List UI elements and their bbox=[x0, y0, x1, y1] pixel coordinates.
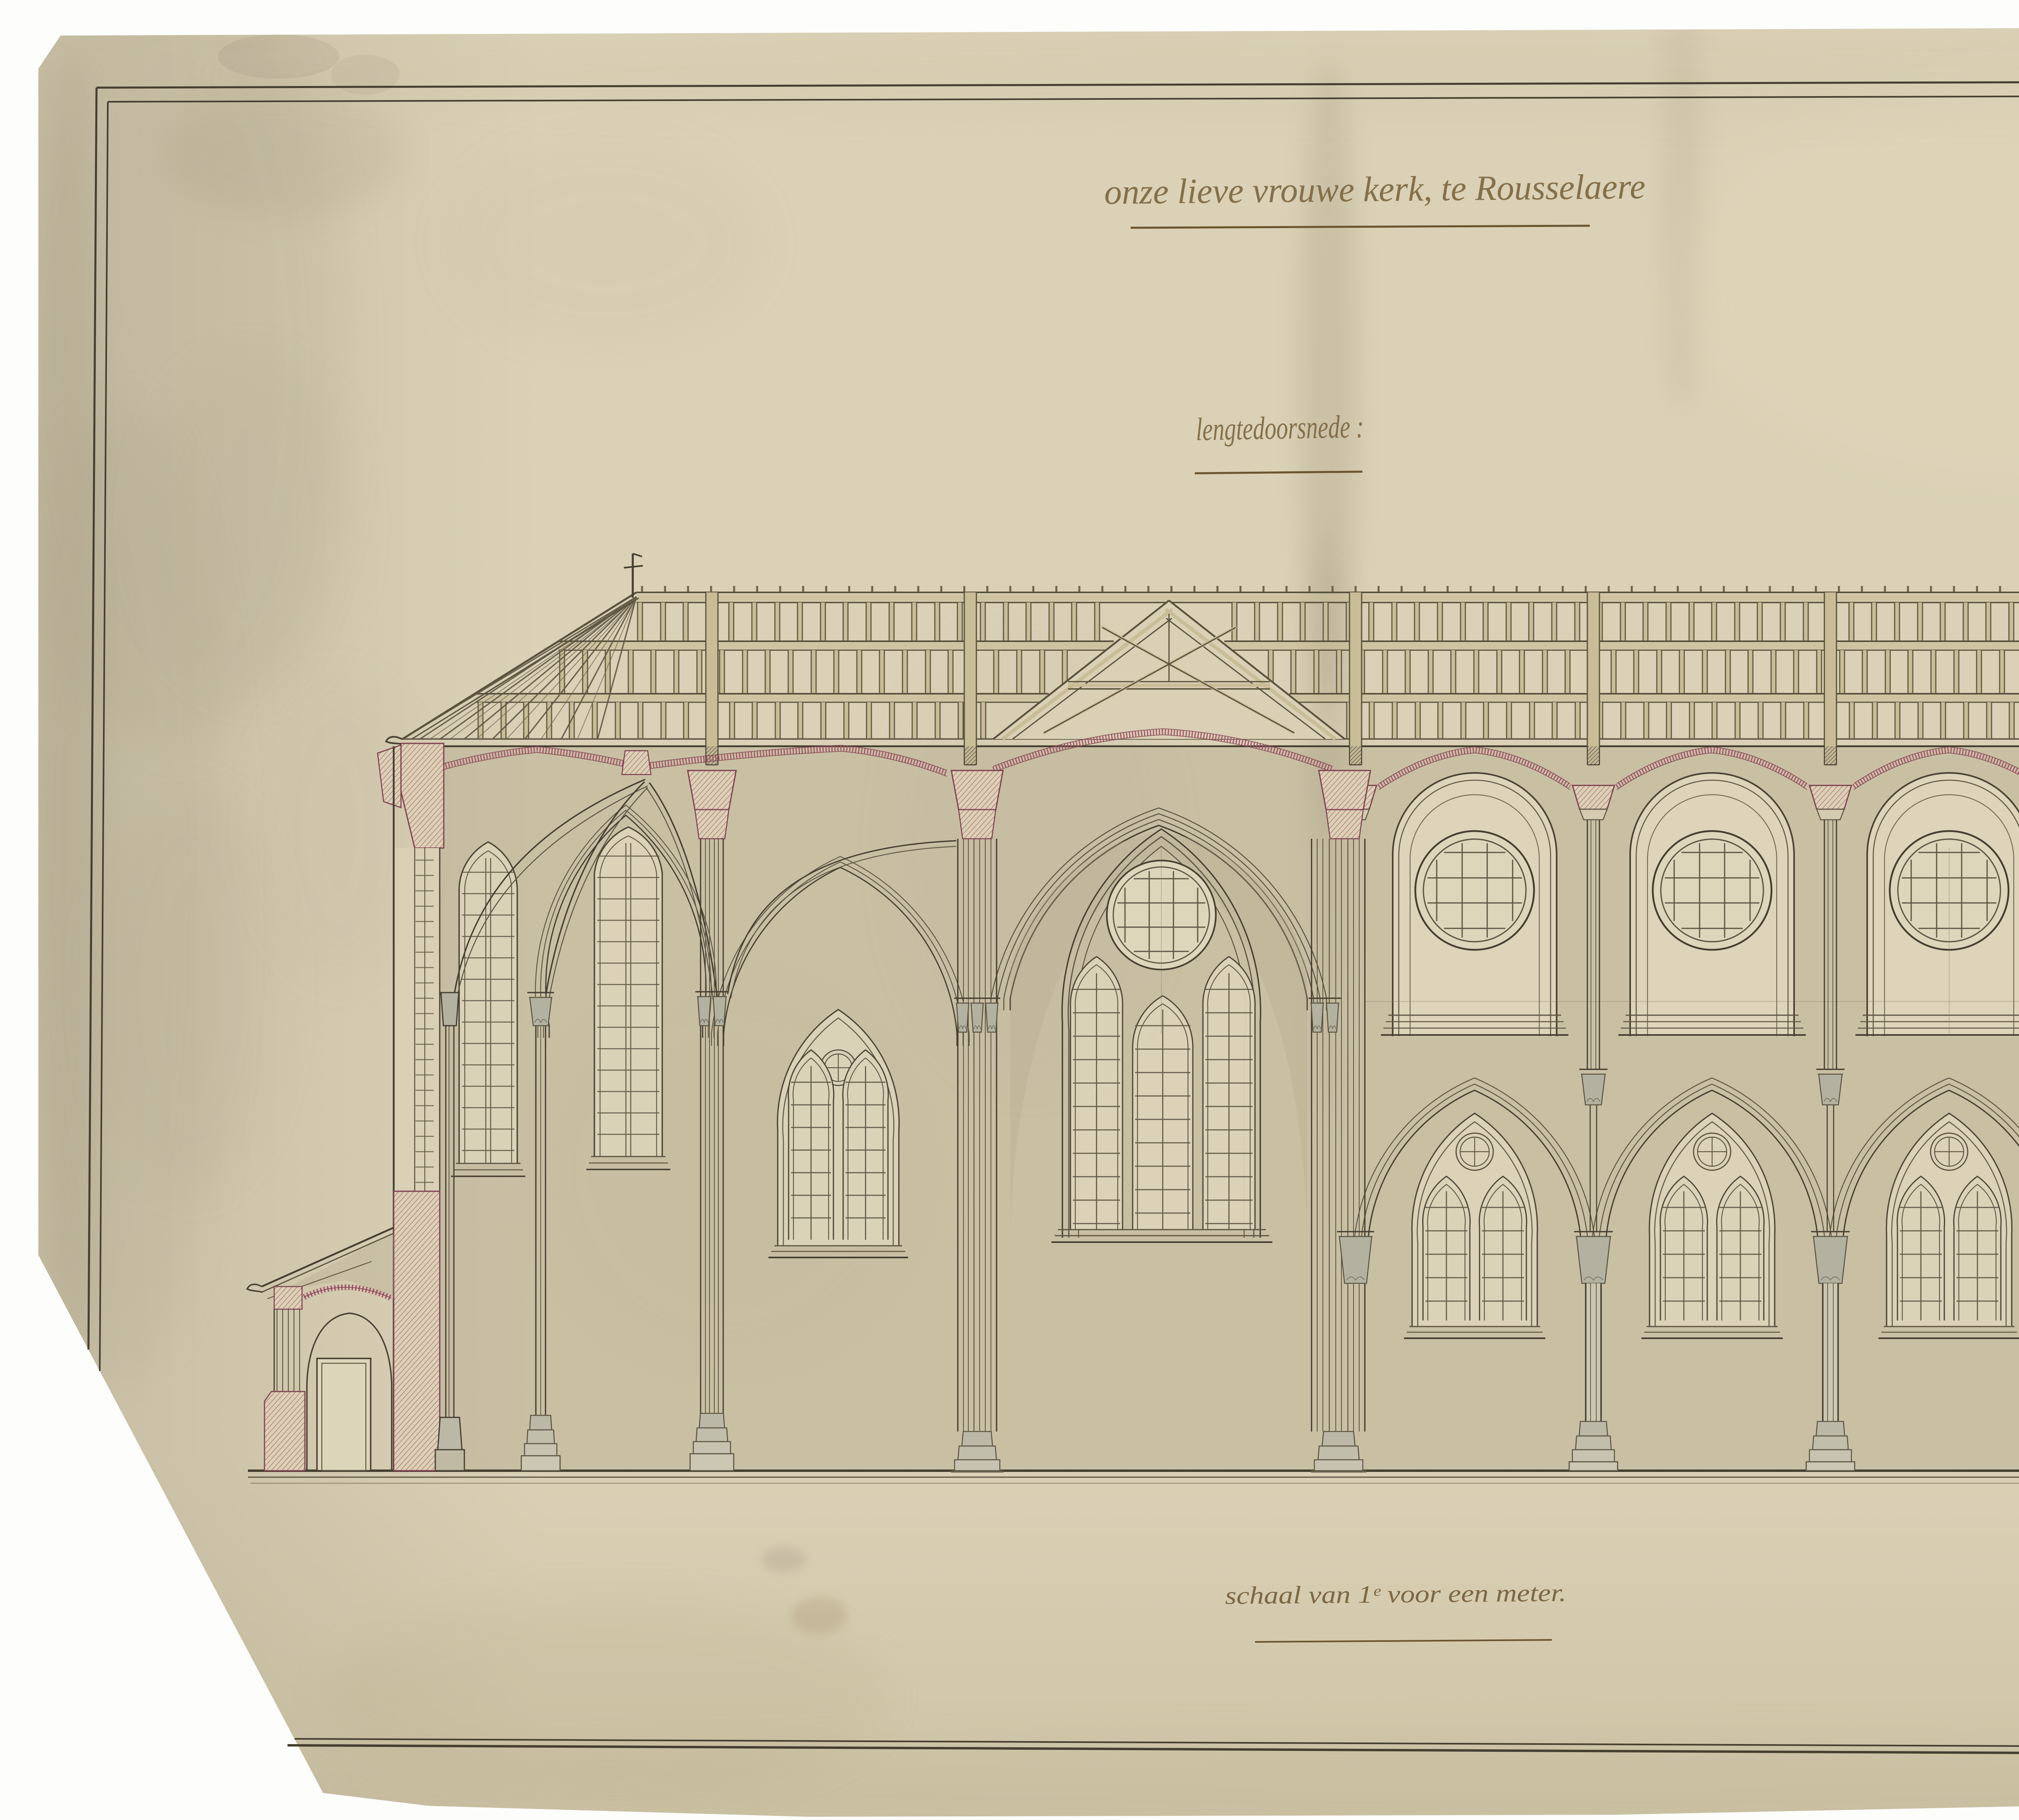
svg-text:schaal van 1ᵉ voor een meter.: schaal van 1ᵉ voor een meter. bbox=[1225, 1579, 1567, 1610]
svg-text:lengtedoorsnede :: lengtedoorsnede : bbox=[1196, 409, 1364, 447]
svg-text:onze lieve vrouwe kerk, te Rou: onze lieve vrouwe kerk, te Rousselaere bbox=[1104, 167, 1645, 212]
